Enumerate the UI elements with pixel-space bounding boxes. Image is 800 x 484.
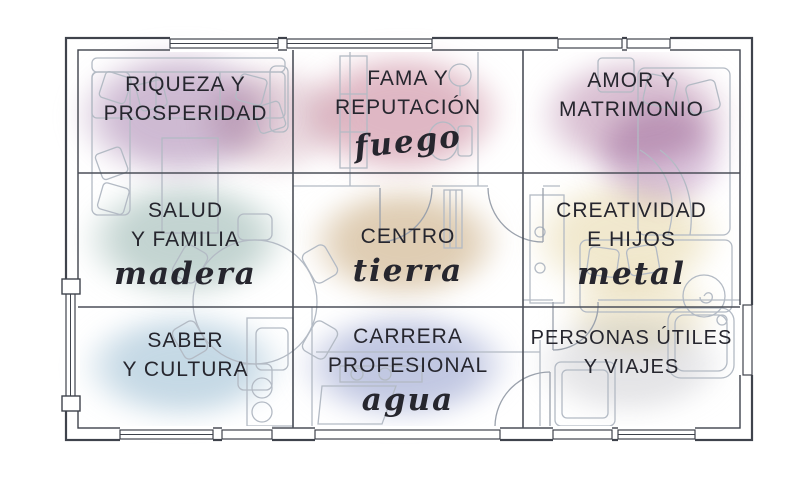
shower <box>668 308 734 378</box>
rug <box>162 138 218 233</box>
door-arc-hall-left <box>380 188 432 242</box>
door-arc-bedroom <box>553 302 598 350</box>
floor-plan-drawing <box>0 0 800 484</box>
bagua-floor-plan: RIQUEZA Y PROSPERIDAD FAMA Y REPUTACIÓN … <box>0 0 800 484</box>
kitchen-cabinet <box>247 318 293 426</box>
kitchen-sink <box>318 386 396 424</box>
wardrobe <box>530 195 564 303</box>
armchair <box>555 362 615 426</box>
dining-chairs <box>170 214 340 390</box>
bathroom-cabinet <box>340 56 367 168</box>
kitchen-counter <box>312 307 540 426</box>
radiator <box>444 190 462 248</box>
sofa <box>92 58 288 215</box>
toilet <box>428 122 472 160</box>
outer-walls <box>66 38 752 440</box>
dining-table <box>170 214 340 390</box>
bathroom-sink <box>449 64 471 96</box>
bed-middle-right <box>580 240 732 317</box>
bed-top-right <box>598 58 730 235</box>
grid-lines <box>78 50 740 428</box>
sofa-pillows <box>94 71 286 216</box>
bathroom-walls <box>350 52 478 186</box>
